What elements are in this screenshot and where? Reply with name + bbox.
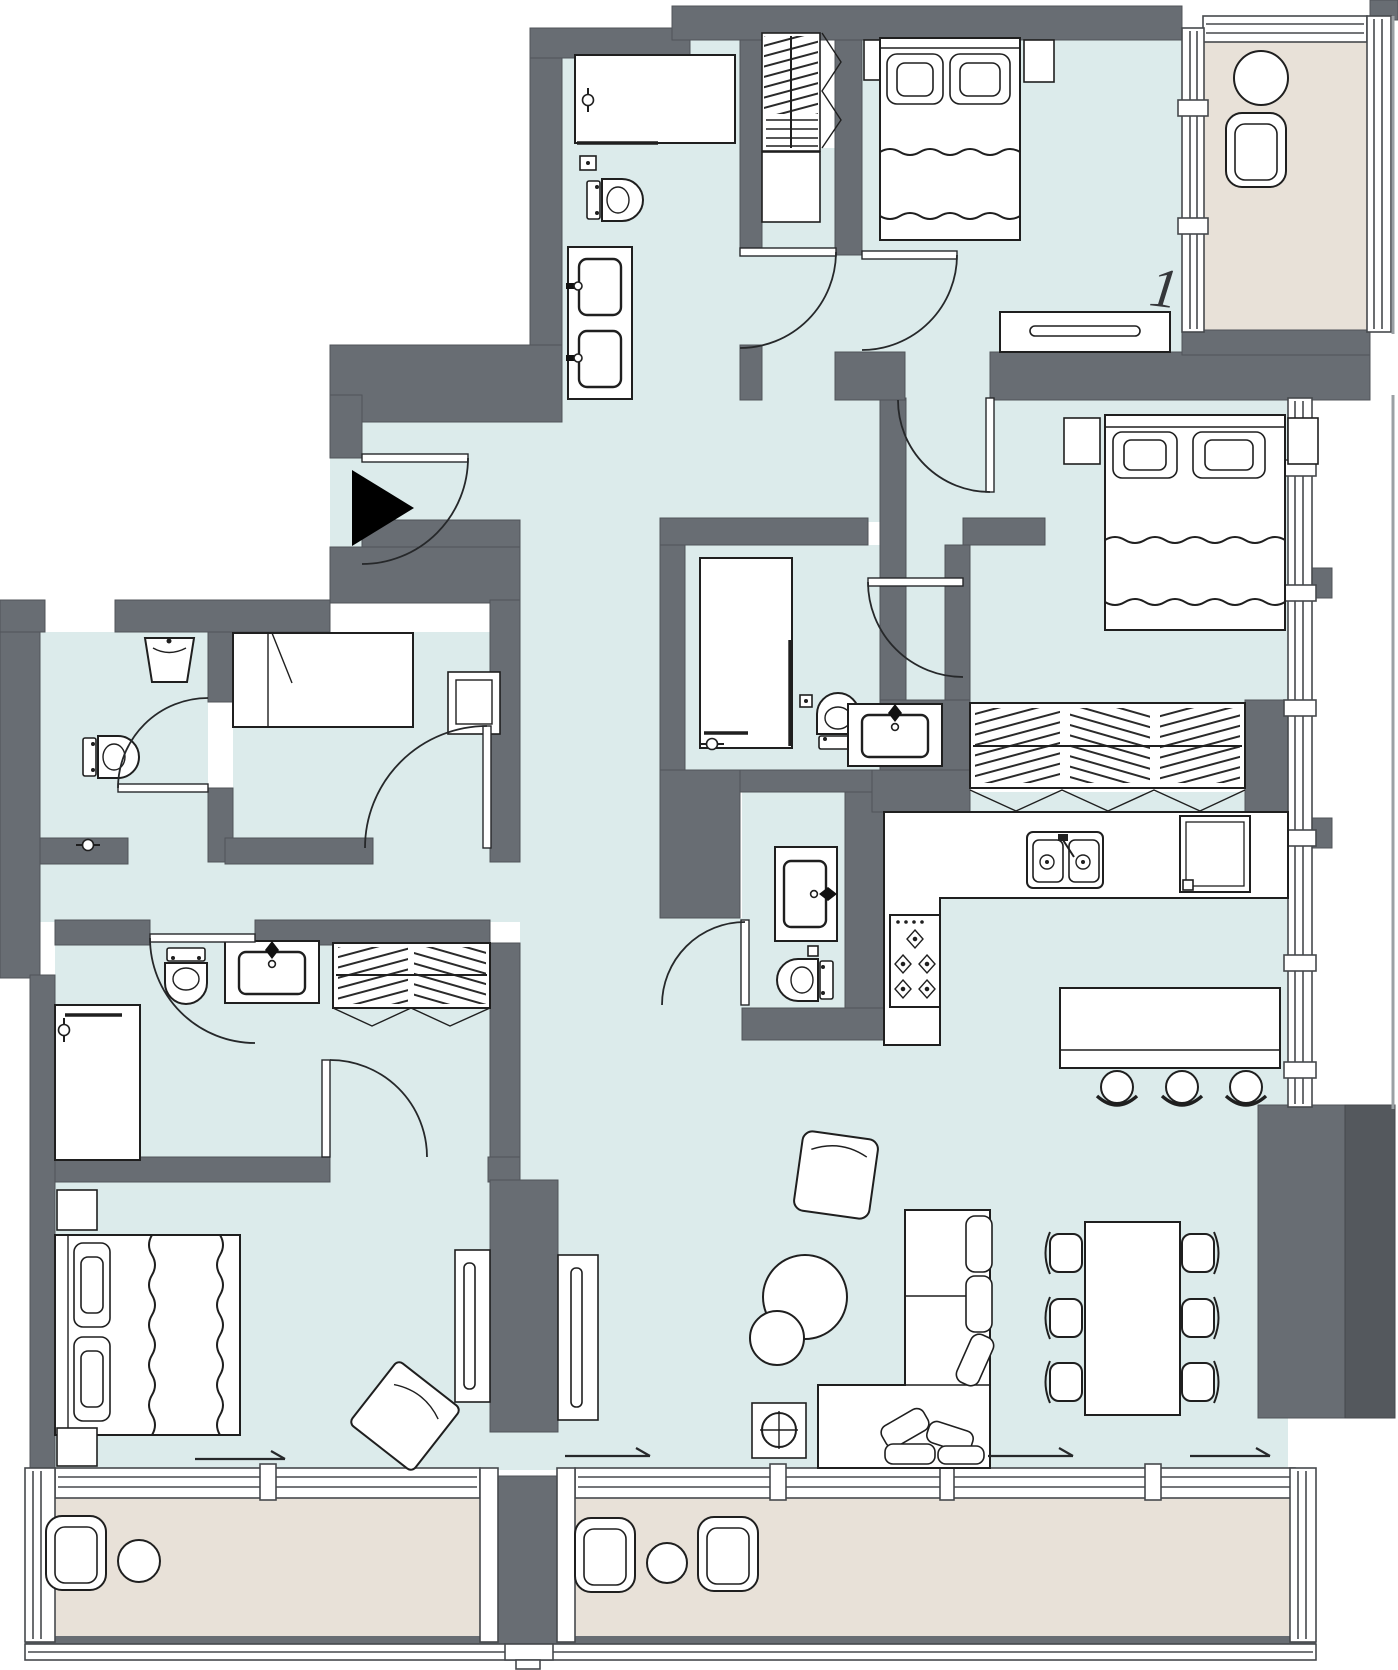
round-table — [647, 1543, 687, 1583]
tv-icon — [571, 1268, 582, 1407]
maid-bathroom-door — [118, 784, 208, 792]
dining-chair — [1182, 1232, 1219, 1274]
south-window-right — [575, 1468, 1295, 1498]
balcony-right-rail — [1367, 16, 1391, 332]
nightstand — [1064, 418, 1100, 464]
east-window-band — [1288, 398, 1312, 1107]
floor-plan-drawing: 1 — [0, 0, 1398, 1670]
dining-chair — [1046, 1361, 1083, 1403]
armchair-pouf — [793, 1130, 879, 1220]
wc-door — [741, 920, 749, 1005]
utility-block-dark — [1345, 1105, 1395, 1418]
cabinet — [762, 152, 820, 222]
balcony-top-right-furniture — [1226, 51, 1288, 187]
armchair — [575, 1518, 635, 1592]
single-bed — [233, 633, 413, 727]
toilet-icon — [165, 948, 207, 1004]
maid-room-door — [483, 726, 491, 848]
bedroom-2-door — [986, 398, 994, 492]
floor-plan: 1 — [0, 0, 1398, 1670]
nightstand — [1024, 40, 1054, 82]
floor-bedroom-2-doorway — [905, 352, 990, 400]
utility-block — [1258, 1105, 1345, 1418]
sink-vanity — [775, 847, 837, 941]
shower — [700, 558, 792, 748]
nightstand — [57, 1428, 97, 1466]
armchair — [698, 1517, 758, 1591]
dining-area — [1046, 1222, 1219, 1415]
balcony-divider — [497, 1476, 557, 1642]
round-table — [1234, 51, 1288, 105]
nightstand — [1288, 418, 1318, 464]
armchair — [1226, 113, 1286, 187]
shower-tray — [575, 55, 735, 143]
bedroom-1-door — [862, 251, 957, 259]
master-bathroom-door — [150, 934, 255, 942]
armchair — [46, 1516, 106, 1590]
kitchen-island — [1060, 988, 1280, 1068]
dining-chair — [1182, 1361, 1219, 1403]
side-table — [750, 1311, 804, 1365]
dining-chair — [1046, 1297, 1083, 1339]
master-bedroom-door — [322, 1060, 330, 1157]
bathroom-middle-door — [868, 578, 963, 586]
toilet-icon — [587, 179, 643, 221]
balcony-top-rail — [1203, 16, 1367, 42]
sink-vanity — [225, 941, 319, 1003]
dining-chair — [1182, 1297, 1219, 1339]
bedroom-1-window — [1182, 28, 1204, 332]
wc — [775, 847, 837, 1001]
nightstand — [57, 1190, 97, 1230]
sink — [145, 638, 194, 682]
floor-master-corridor — [40, 862, 520, 922]
bathroom-top-door — [740, 248, 836, 256]
floor-bath-top-door-gap — [740, 250, 762, 345]
double-vanity — [568, 247, 632, 399]
tv-icon — [464, 1263, 475, 1389]
toilet-paper-holder-icon — [808, 946, 818, 956]
floor-corridor — [520, 398, 660, 1062]
dining-table — [1085, 1222, 1180, 1415]
sink-vanity — [848, 704, 942, 766]
entrance-door — [362, 454, 468, 462]
round-table — [118, 1540, 160, 1582]
toilet-icon — [777, 959, 833, 1001]
dining-chair — [1046, 1232, 1083, 1274]
